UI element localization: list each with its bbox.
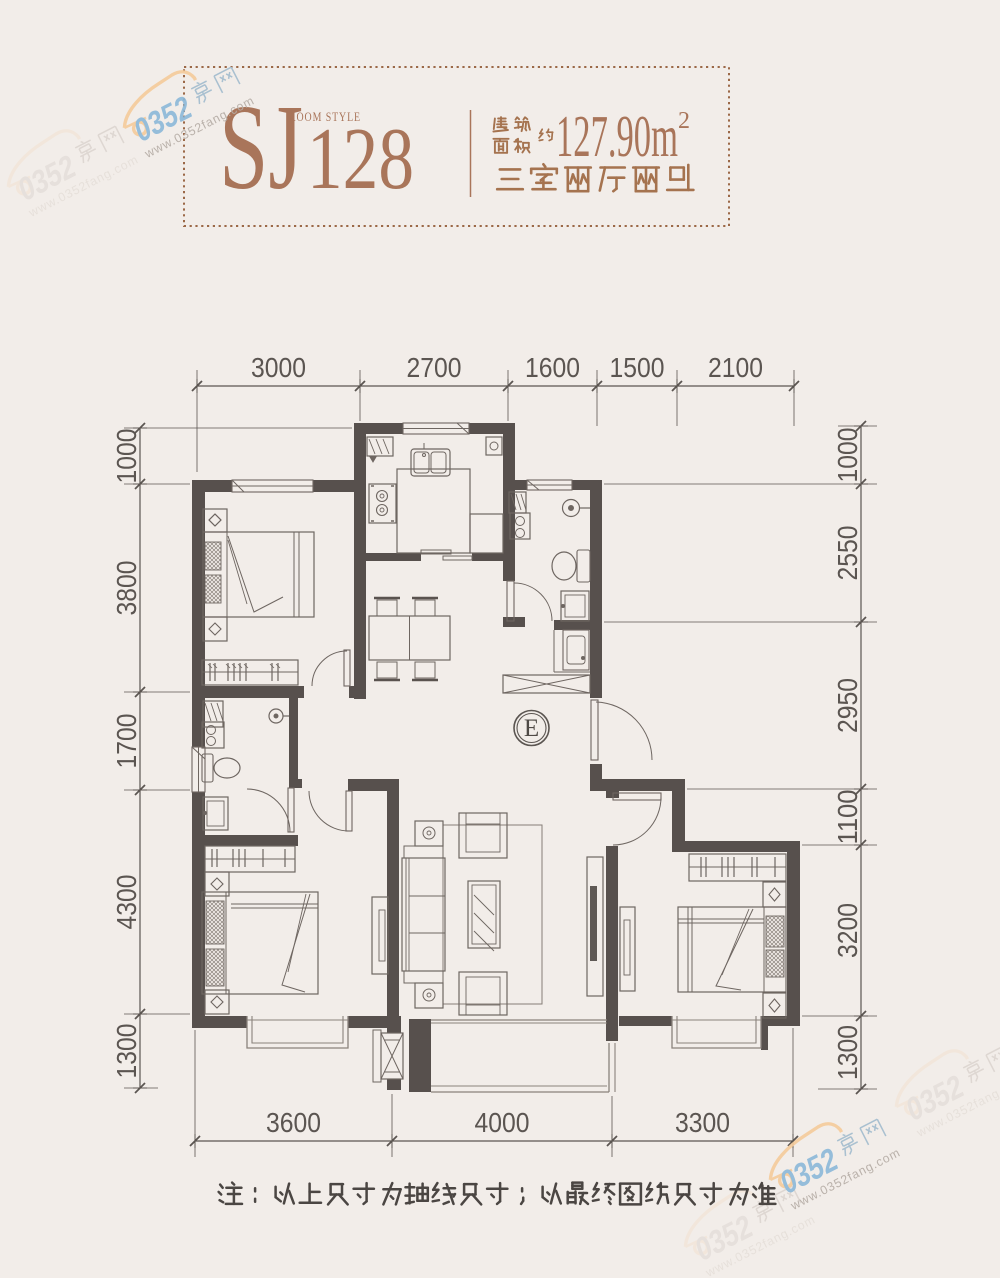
- svg-text:2: 2: [678, 108, 690, 134]
- svg-text:1500: 1500: [610, 352, 665, 383]
- svg-text:4300: 4300: [111, 875, 142, 930]
- svg-text:E: E: [524, 715, 539, 742]
- svg-text:1700: 1700: [111, 714, 142, 769]
- svg-text:2700: 2700: [407, 352, 462, 383]
- svg-text:1000: 1000: [111, 429, 142, 484]
- svg-text:1300: 1300: [832, 1025, 863, 1080]
- svg-text:ROOM STYLE: ROOM STYLE: [289, 109, 361, 124]
- svg-text:3600: 3600: [266, 1107, 321, 1138]
- svg-text:1000: 1000: [832, 428, 863, 483]
- svg-text:4000: 4000: [475, 1107, 530, 1138]
- svg-text:127.90m: 127.90m: [556, 103, 678, 169]
- svg-text:3300: 3300: [675, 1107, 730, 1138]
- svg-text:3800: 3800: [111, 561, 142, 616]
- svg-text:SJ: SJ: [219, 80, 303, 215]
- svg-text:3200: 3200: [832, 903, 863, 958]
- svg-text:2550: 2550: [832, 526, 863, 581]
- svg-text:1600: 1600: [525, 352, 580, 383]
- svg-text:1100: 1100: [832, 790, 863, 845]
- svg-text:128: 128: [307, 111, 414, 208]
- svg-text:2100: 2100: [708, 352, 763, 383]
- svg-text:2950: 2950: [832, 678, 863, 733]
- svg-text:3000: 3000: [251, 352, 306, 383]
- svg-text:1300: 1300: [111, 1024, 142, 1079]
